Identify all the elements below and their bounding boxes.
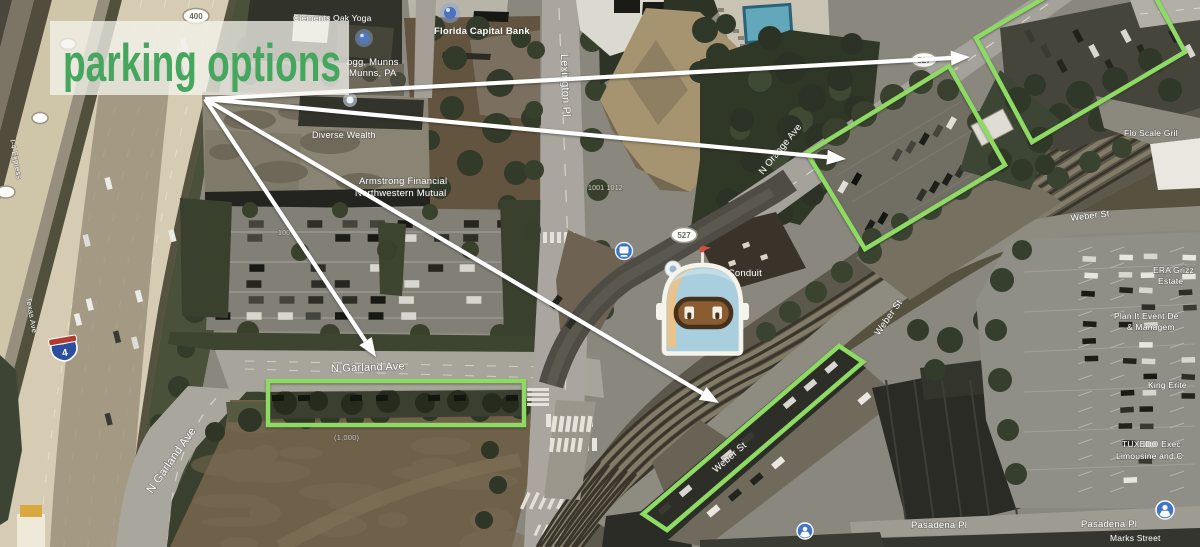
svg-text:100: 100 bbox=[278, 230, 290, 237]
svg-text:Limousine and C: Limousine and C bbox=[1116, 451, 1183, 461]
svg-text:Marks Street: Marks Street bbox=[1110, 533, 1161, 543]
svg-text:400: 400 bbox=[189, 12, 203, 21]
svg-text:Pasadena Pl: Pasadena Pl bbox=[1081, 519, 1137, 530]
svg-text:parking options: parking options bbox=[63, 34, 341, 93]
svg-text:TUXEDO Exec: TUXEDO Exec bbox=[1122, 439, 1181, 449]
svg-text:1001 1012: 1001 1012 bbox=[588, 185, 623, 192]
svg-text:Diverse Wealth: Diverse Wealth bbox=[312, 130, 376, 140]
svg-text:& Managem: & Managem bbox=[1127, 322, 1175, 332]
svg-text:Flo Scale Gril: Flo Scale Gril bbox=[1124, 128, 1178, 138]
svg-text:ogg, Munns: ogg, Munns bbox=[347, 57, 399, 68]
svg-text:Munns, PA: Munns, PA bbox=[349, 68, 397, 79]
svg-text:ERA Grizz: ERA Grizz bbox=[1153, 265, 1194, 275]
svg-text:Florida Capital Bank: Florida Capital Bank bbox=[434, 26, 530, 37]
svg-text:Pasadena Pl: Pasadena Pl bbox=[911, 520, 967, 531]
svg-text:Plan It Event De: Plan It Event De bbox=[1114, 311, 1179, 321]
svg-text:527: 527 bbox=[677, 231, 691, 240]
svg-text:(1,000): (1,000) bbox=[334, 433, 359, 442]
svg-text:King Erite: King Erite bbox=[1148, 380, 1187, 390]
svg-text:Lexington Pl: Lexington Pl bbox=[558, 54, 572, 117]
svg-text:Armstrong Financial: Armstrong Financial bbox=[359, 176, 447, 187]
svg-text:Estate: Estate bbox=[1158, 276, 1183, 286]
